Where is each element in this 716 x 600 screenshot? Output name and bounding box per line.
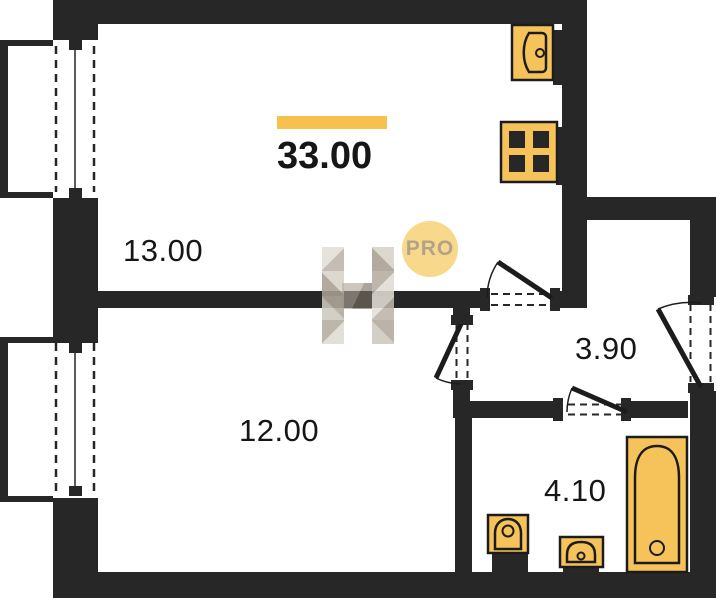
wall-left-pier [53,198,98,343]
jamb [451,315,473,325]
window-tick [69,188,82,198]
door-room-bottom [436,323,468,384]
hallway-area-label: 3.90 [575,331,637,367]
stove-icon [501,122,563,185]
jamb [688,295,714,305]
jamb [451,380,473,390]
wall-bath-top-left [455,401,555,418]
wall-right-lower [690,391,716,598]
door-leaf [572,388,627,412]
burner [533,131,549,148]
jamb [480,288,490,311]
wall-bottom [53,572,716,598]
wall-mid-left [53,291,483,308]
balcony-cap [0,192,53,198]
door-room-top [487,262,552,305]
watermark-crossbar [342,283,374,309]
jamb [553,398,563,421]
burner [509,131,525,148]
wall-bath-left [455,401,472,572]
room-top-area-label: 13.00 [123,233,203,269]
door-entry [658,302,711,387]
watermark-bar [372,247,394,344]
door-leaf [658,309,701,387]
wall-right-upper [690,197,716,297]
door-bathroom [556,388,627,415]
watermark-h-logo [322,247,394,344]
window-tick [69,343,82,353]
window-left-bottom [0,337,94,502]
burner [533,155,549,172]
kitchen-sink-icon [512,25,562,85]
window-left-top [0,40,94,198]
wall-top [53,0,587,24]
balcony-cap [0,40,53,46]
pro-badge-label: PRO [406,237,455,261]
wall-top-left-stub [53,0,98,40]
balcony-rail [0,40,8,198]
washbasin-icon [560,537,603,573]
watermark-bar [322,247,344,344]
door-leaf [498,262,552,298]
balcony-cap [0,337,53,343]
bathtub-icon [627,437,687,572]
wall-bath-top-right [625,401,688,418]
total-area-label: 33.00 [277,135,372,178]
floor-plan: PRO 33.00 13.00 12.00 3.90 4.10 [0,0,716,600]
window-tick [69,40,82,50]
wall-mid-right [558,291,587,308]
balcony-cap [0,496,53,502]
fixture-shadow [553,30,562,85]
pro-badge: PRO [402,221,458,277]
jamb [550,288,560,311]
toilet-icon [488,515,528,572]
wall-kitchen-right [562,0,587,308]
door-swing-arc [567,388,572,412]
window-tick [69,486,82,496]
bathroom-area-label: 4.10 [544,473,606,509]
total-area-highlight-bar [277,116,387,129]
burner [509,155,525,172]
room-bottom-area-label: 12.00 [239,413,319,449]
balcony-rail [0,337,8,502]
